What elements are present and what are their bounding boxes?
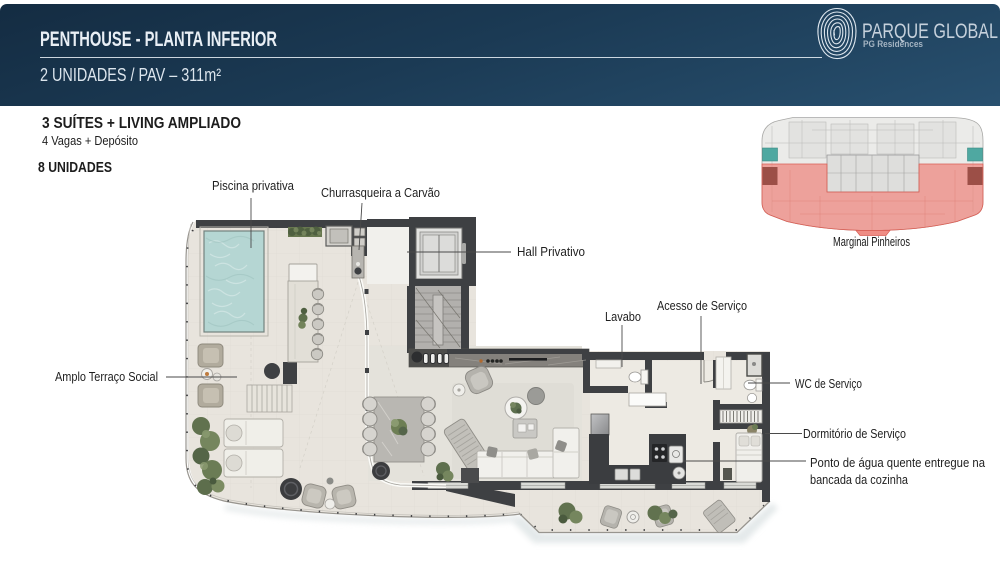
svg-text:Amplo Terraço Social: Amplo Terraço Social <box>55 369 158 384</box>
svg-text:Piscina privativa: Piscina privativa <box>212 178 295 193</box>
svg-text:Churrasqueira a Carvão: Churrasqueira a Carvão <box>321 185 440 200</box>
svg-text:8 UNIDADES: 8 UNIDADES <box>38 159 112 176</box>
svg-text:PENTHOUSE - PLANTA INFERIOR: PENTHOUSE - PLANTA INFERIOR <box>40 28 277 51</box>
svg-text:4 Vagas + Depósito: 4 Vagas + Depósito <box>42 133 138 148</box>
svg-text:Lavabo: Lavabo <box>605 309 641 324</box>
svg-text:Dormitório de Serviço: Dormitório de Serviço <box>803 426 906 441</box>
svg-text:PG Residences: PG Residences <box>863 39 923 50</box>
svg-text:2 UNIDADES / PAV – 311m²: 2 UNIDADES / PAV – 311m² <box>40 65 221 85</box>
svg-text:bancada da cozinha: bancada da cozinha <box>810 472 909 487</box>
svg-text:Hall Privativo: Hall Privativo <box>517 244 585 259</box>
svg-text:Ponto de água quente entregue: Ponto de água quente entregue na <box>810 455 986 470</box>
svg-text:Acesso de Serviço: Acesso de Serviço <box>657 298 747 313</box>
svg-text:WC de Serviço: WC de Serviço <box>795 376 862 391</box>
svg-text:3 SUÍTES + LIVING AMPLIADO: 3 SUÍTES + LIVING AMPLIADO <box>42 113 241 132</box>
svg-text:Marginal Pinheiros: Marginal Pinheiros <box>833 235 910 249</box>
